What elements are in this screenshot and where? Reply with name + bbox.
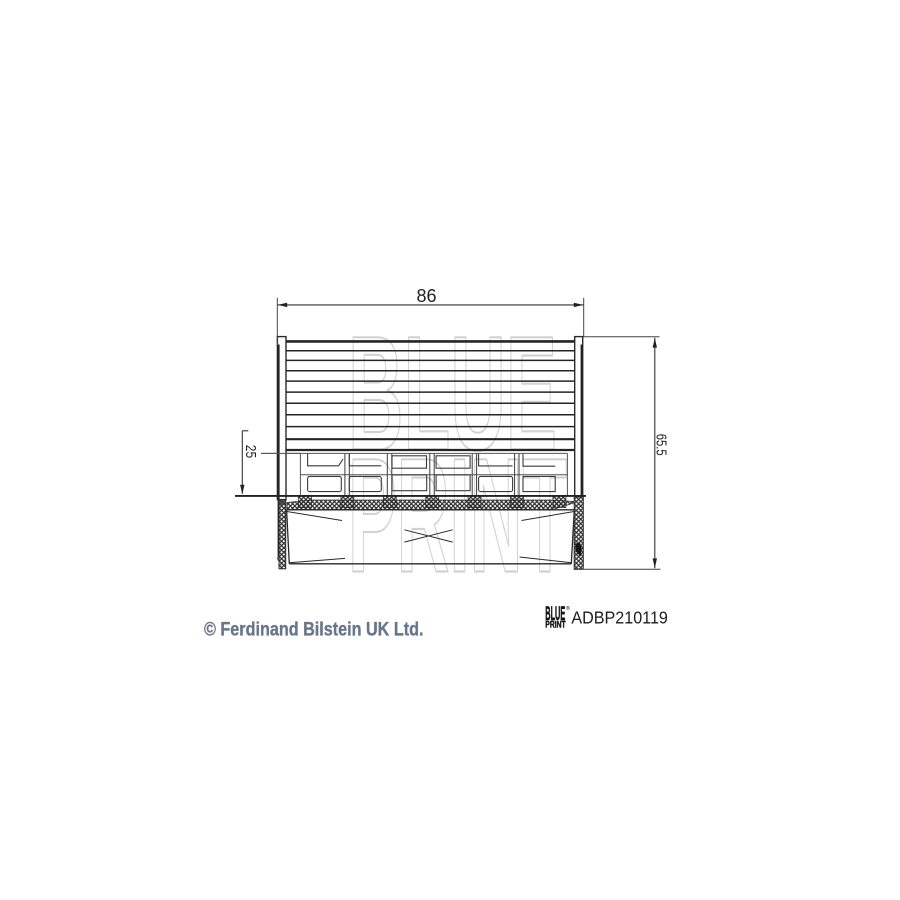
svg-text:86: 86 [416,286,436,306]
svg-text:®: ® [566,605,570,612]
svg-text:65.5: 65.5 [653,434,669,456]
svg-text:25: 25 [242,445,258,458]
svg-text:PRINT: PRINT [545,620,565,631]
svg-text:ADBP210119: ADBP210119 [571,608,668,628]
svg-text:© Ferdinand Bilstein UK Ltd.: © Ferdinand Bilstein UK Ltd. [204,620,424,641]
